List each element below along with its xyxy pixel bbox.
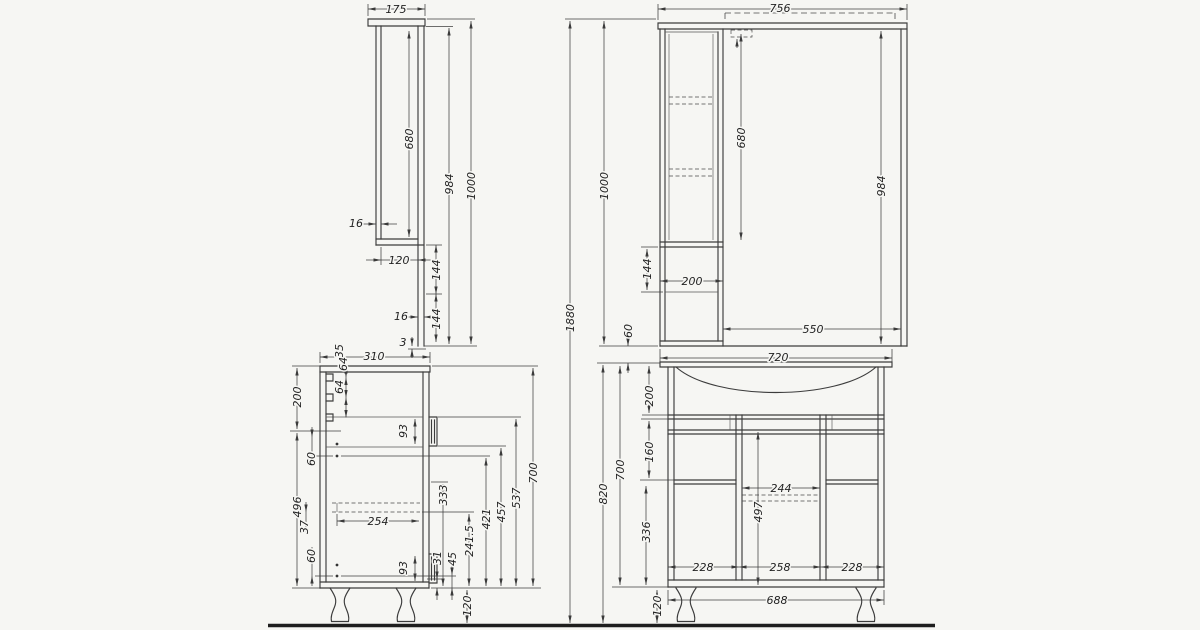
dim-mirror-side-offset-b: 144	[430, 309, 443, 330]
dim-mirror-front-overall-width: 756	[770, 2, 791, 15]
dim-vanity-front-box-700: 700	[614, 460, 627, 481]
technical-drawing-bathroom-furniture: 1756809841000161201441614437561000680984…	[0, 0, 1200, 630]
dim-vanity-side-box-700: 700	[527, 463, 540, 484]
dim-vanity-side-handle-lower: 93	[397, 561, 410, 575]
blueprint-svg: 1756809841000161201441614437561000680984…	[0, 0, 1200, 630]
dim-vanity-side-421: 421	[480, 509, 493, 530]
dim-vanity-front-basin-width: 720	[768, 351, 789, 364]
dim-vanity-side-241-5: 241.5	[463, 525, 476, 557]
dim-vanity-side-chain-35: 35	[333, 344, 346, 358]
dim-vanity-front-section-228b: 228	[842, 561, 863, 574]
dim-vanity-front-low-336: 336	[640, 522, 653, 543]
dim-vanity-side-depth: 310	[364, 350, 385, 363]
dim-vanity-front-carcass-688: 688	[767, 594, 788, 607]
dim-mirror-front-mirror-width: 550	[803, 323, 824, 336]
dim-vanity-front-legs-120: 120	[651, 596, 664, 617]
dim-vanity-side-chain-64a: 64	[337, 357, 350, 371]
dim-mirror-front-column-width: 200	[682, 275, 703, 288]
dim-vanity-front-basin-200: 200	[643, 386, 656, 407]
dim-vanity-side-drawer-depth: 254	[368, 515, 389, 528]
dim-mirror-side-offset-a: 144	[430, 260, 443, 281]
dim-mirror-front-door-height: 680	[735, 128, 748, 149]
dim-vanity-front-center-244: 244	[771, 482, 792, 495]
dim-vanity-side-31: 31	[431, 551, 444, 565]
dim-vanity-side-handle-upper: 93	[397, 424, 410, 438]
dim-vanity-side-457: 457	[495, 502, 508, 523]
dim-vanity-front-section-228a: 228	[693, 561, 714, 574]
dim-vanity-front-section-258: 258	[770, 561, 791, 574]
dim-mirror-side-top-depth: 175	[386, 3, 407, 16]
dim-vanity-front-overall-820: 820	[597, 484, 610, 505]
dim-vanity-side-45: 45	[446, 552, 459, 566]
dim-vanity-side-offset-37: 37	[298, 520, 311, 534]
dim-vanity-front-center-497: 497	[752, 502, 765, 523]
dim-overall-height: 1880	[564, 304, 577, 332]
dim-vanity-side-upper-200: 200	[291, 387, 304, 408]
dim-mirror-side-panel-thickness-upper: 16	[349, 217, 363, 230]
dim-mirror-front-gap: 60	[622, 324, 635, 338]
dim-vanity-side-holes-60a: 60	[305, 452, 318, 466]
dim-mirror-front-overall-height: 1000	[598, 172, 611, 200]
dim-mirror-front-under-top-height: 984	[875, 176, 888, 197]
dim-mirror-side-under-top-height: 984	[443, 174, 456, 195]
dim-vanity-side-lower-496: 496	[291, 497, 304, 518]
dim-vanity-side-537: 537	[510, 488, 523, 509]
dim-vanity-side-legs-120: 120	[461, 596, 474, 617]
dim-vanity-front-mid-160: 160	[643, 442, 656, 463]
dim-vanity-side-chain-64b: 64	[333, 380, 346, 394]
dim-mirror-side-overall-height: 1000	[465, 172, 478, 200]
dim-vanity-side-333: 333	[437, 485, 450, 506]
dim-mirror-side-panel-thickness-lower: 16	[394, 310, 408, 323]
dim-mirror-front-lower-offset: 144	[641, 259, 654, 280]
dim-mirror-side-lower-depth: 120	[389, 254, 410, 267]
view-mirror-cabinet-side	[360, 4, 477, 358]
dim-mirror-side-bottom-gap: 3	[400, 336, 407, 349]
view-vanity-cabinet-side	[290, 352, 541, 623]
dim-mirror-side-door-height: 680	[403, 129, 416, 150]
dim-vanity-side-holes-60b: 60	[305, 549, 318, 563]
